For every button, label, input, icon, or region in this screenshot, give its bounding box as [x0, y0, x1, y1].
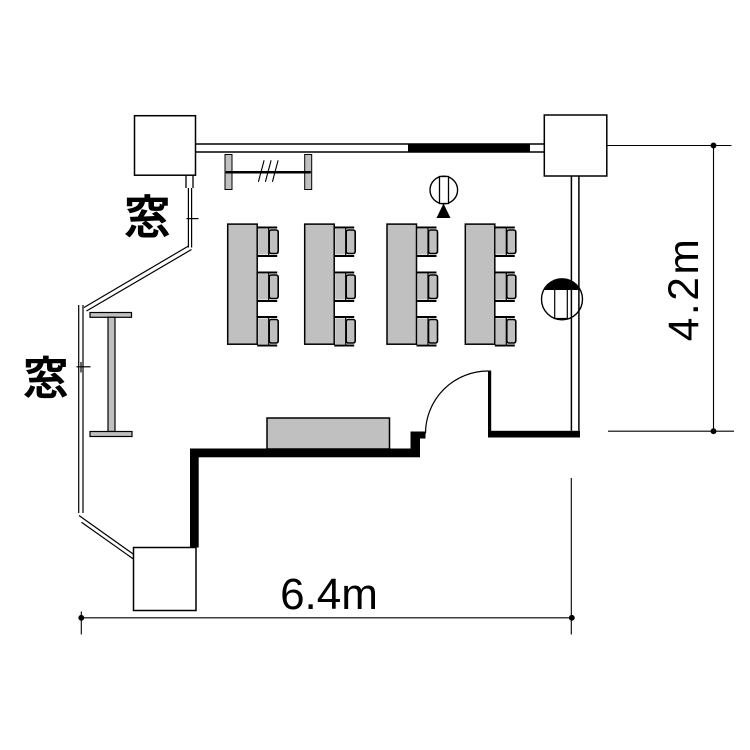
svg-text:4.2m: 4.2m	[661, 237, 708, 341]
svg-text:6.4m: 6.4m	[280, 570, 378, 619]
